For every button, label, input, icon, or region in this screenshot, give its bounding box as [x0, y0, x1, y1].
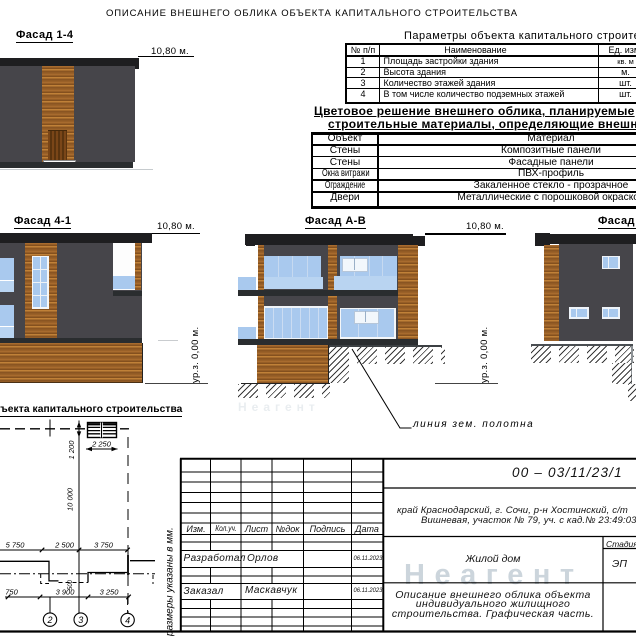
svg-text:3 750: 3 750	[94, 541, 114, 550]
svg-text:*размеры указаны в мм.: *размеры указаны в мм.	[165, 527, 176, 636]
svg-text:1 200: 1 200	[67, 440, 76, 460]
svg-text:10 000: 10 000	[66, 487, 75, 511]
svg-text:2 500: 2 500	[54, 541, 75, 550]
svg-text:2 250: 2 250	[91, 440, 112, 449]
svg-text:4: 4	[125, 615, 130, 625]
svg-text:3: 3	[78, 615, 83, 625]
svg-text:750: 750	[5, 588, 18, 597]
svg-text:3 250: 3 250	[100, 588, 120, 597]
svg-text:5 750: 5 750	[6, 541, 26, 550]
svg-text:500: 500	[68, 579, 74, 590]
svg-text:2: 2	[46, 615, 52, 625]
